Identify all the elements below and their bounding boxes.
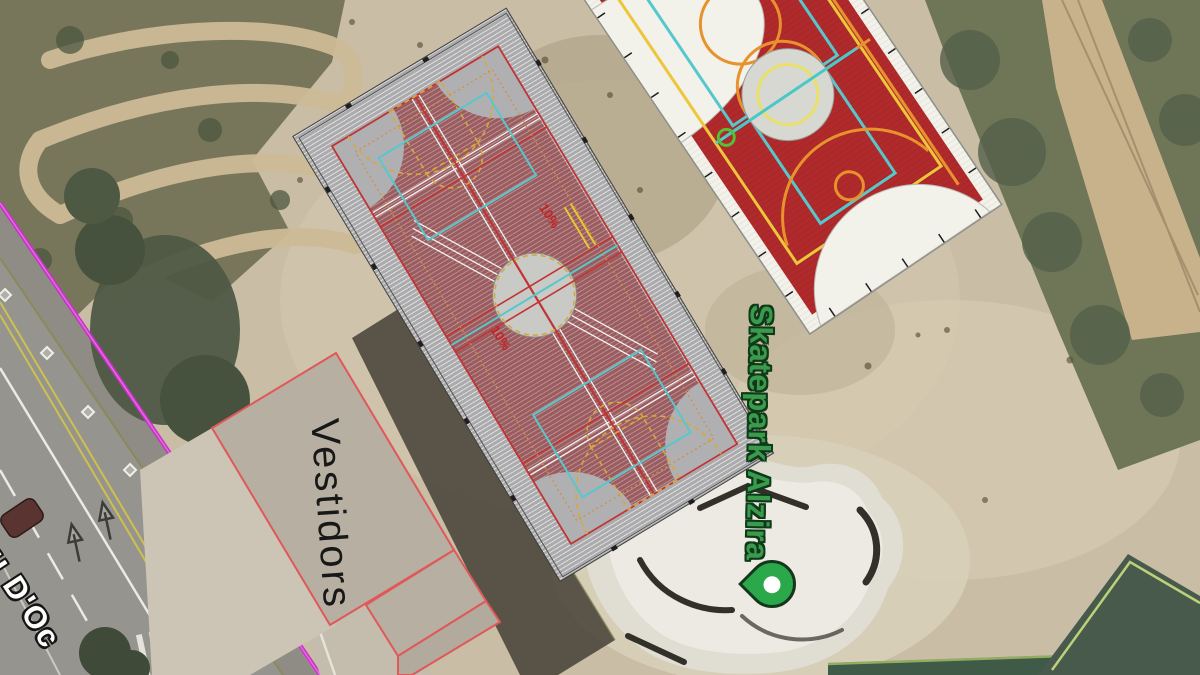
- poi-label[interactable]: Skatepark Alzira: [739, 304, 779, 561]
- cad-yellow-segments: [565, 203, 596, 248]
- pin-dot: [760, 573, 784, 597]
- map-canvas[interactable]: Vestidors Skatepark Alzira u D'Oc 10% 10…: [0, 0, 1200, 675]
